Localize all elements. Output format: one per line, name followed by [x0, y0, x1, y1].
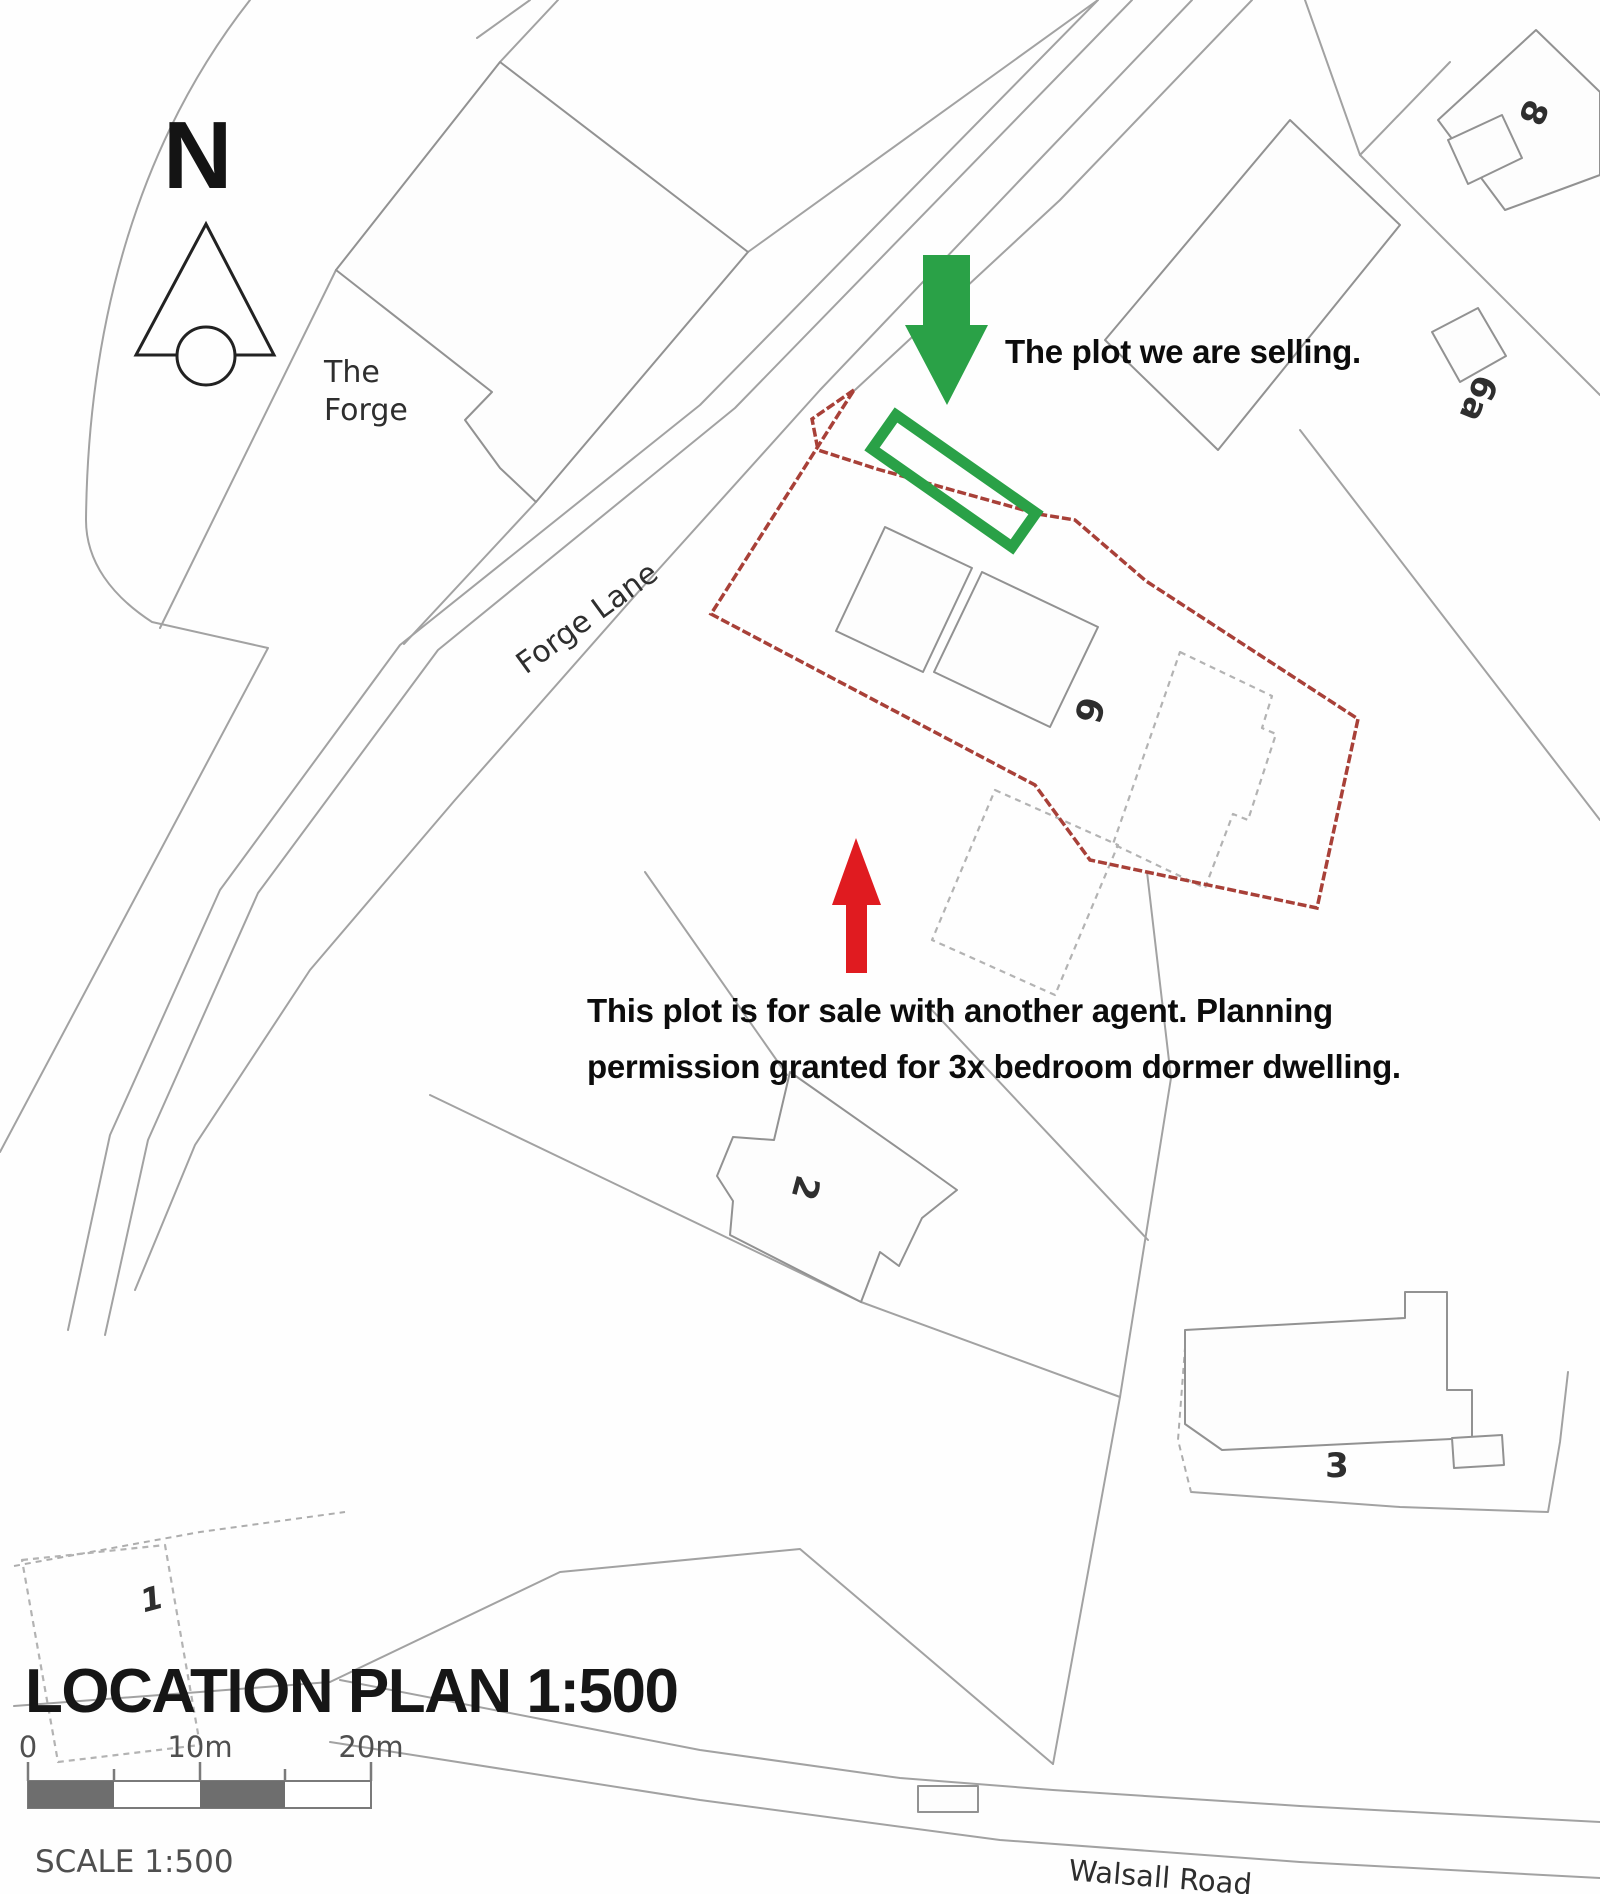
- house-3-label: 3: [1325, 1446, 1349, 1486]
- page-title: LOCATION PLAN 1:500: [25, 1657, 677, 1726]
- scale-label: SCALE 1:500: [35, 1844, 234, 1880]
- scale-bar: 0 10m 20m SCALE 1:500: [19, 1730, 404, 1880]
- building-3-annex: [1452, 1435, 1504, 1468]
- plot2-west-boundary: [645, 872, 787, 1075]
- forge-apex-lines: [477, 0, 558, 62]
- building-2: [717, 1072, 957, 1302]
- building-the-forge: [336, 62, 748, 502]
- location-plan-map: N The Forge Forge Lane 8 6a 6 2 3 1 Wals…: [0, 0, 1600, 1894]
- building-6: [1113, 652, 1276, 888]
- forge-plot-west-line: [160, 270, 336, 628]
- building-6a: [1105, 120, 1400, 450]
- the-forge-label-line1: The: [323, 355, 380, 390]
- house-6-label: 6: [1065, 692, 1111, 727]
- road-structure: [918, 1786, 978, 1812]
- the-forge-label-line2: Forge: [324, 393, 408, 428]
- scale-bar-segment-dark2: [200, 1781, 285, 1808]
- walsall-road-label: Walsall Road: [1067, 1853, 1253, 1894]
- plot6a-se-boundary: [1300, 430, 1600, 820]
- scale-tick-0-label: 0: [19, 1730, 37, 1764]
- building-8: [1438, 30, 1600, 210]
- plot8-boundary: [1305, 0, 1450, 155]
- scale-tick-20-label: 20m: [338, 1730, 403, 1764]
- plot-for-sale-green-outline: [872, 415, 1036, 547]
- building-3: [1185, 1292, 1472, 1450]
- north-circle: [177, 327, 235, 385]
- scale-bar-ticks: [28, 1762, 371, 1781]
- plot1-ne-boundary: [14, 1512, 345, 1566]
- other-agent-note-line2: permission granted for 3x bedroom dormer…: [587, 1048, 1401, 1085]
- annotations: The plot we are selling. This plot is fo…: [587, 333, 1401, 1085]
- parcel-lines: [0, 0, 1600, 1878]
- building-6-garage: [932, 790, 1118, 995]
- buildings: [22, 30, 1600, 1762]
- house-1-label: 1: [136, 1578, 167, 1620]
- forge-lane-label: Forge Lane: [510, 555, 665, 681]
- scale-bar-segment-dark1: [28, 1781, 114, 1808]
- red-up-arrow-icon: [832, 838, 881, 973]
- north-letter: N: [163, 102, 232, 209]
- plot2-east-boundary: [930, 1008, 1148, 1240]
- location-plan-page: N The Forge Forge Lane 8 6a 6 2 3 1 Wals…: [0, 0, 1600, 1894]
- scale-tick-10-label: 10m: [167, 1730, 232, 1764]
- selling-note-text: The plot we are selling.: [1005, 333, 1361, 370]
- north-arrow-icon: N: [136, 102, 274, 385]
- other-agent-note-line1: This plot is for sale with another agent…: [587, 992, 1333, 1029]
